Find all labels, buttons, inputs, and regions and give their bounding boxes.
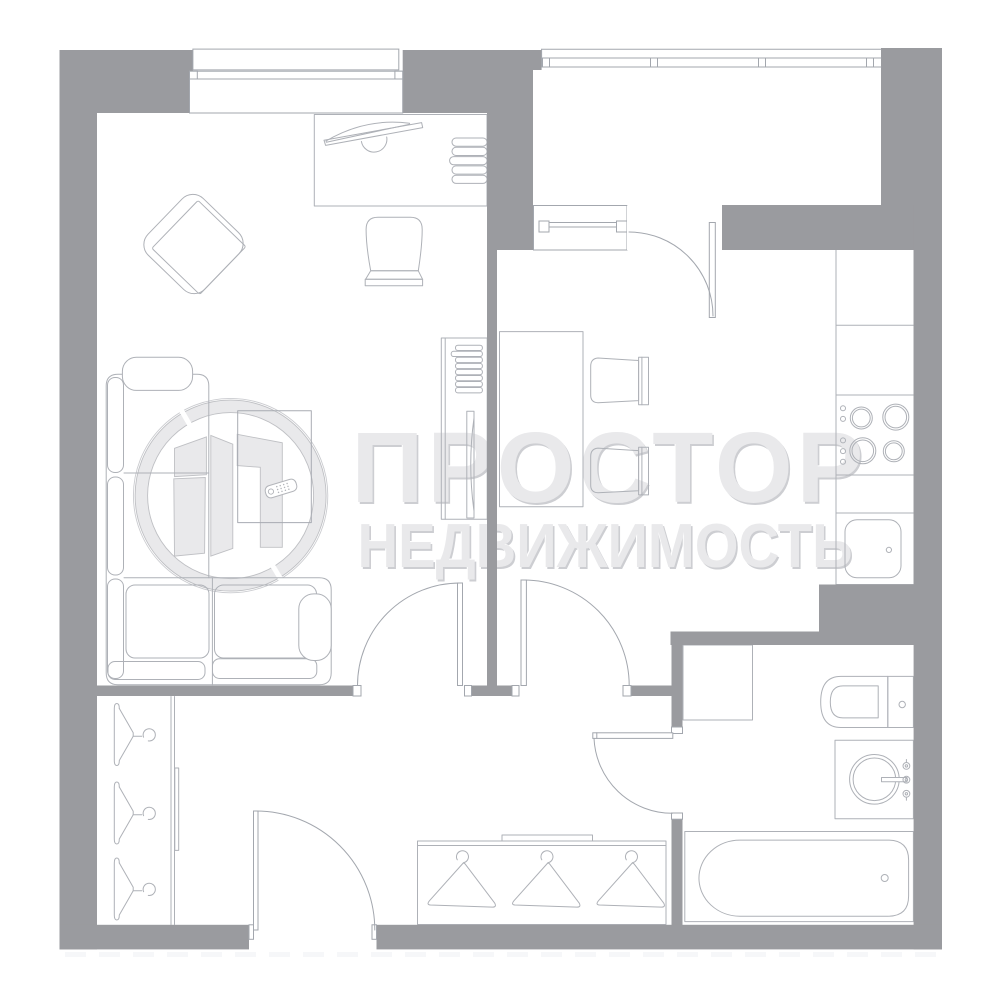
svg-text:НЕДВИЖИМОСТЬ: НЕДВИЖИМОСТЬ	[358, 512, 853, 581]
svg-text:ПРОСТОР: ПРОСТОР	[352, 412, 868, 524]
